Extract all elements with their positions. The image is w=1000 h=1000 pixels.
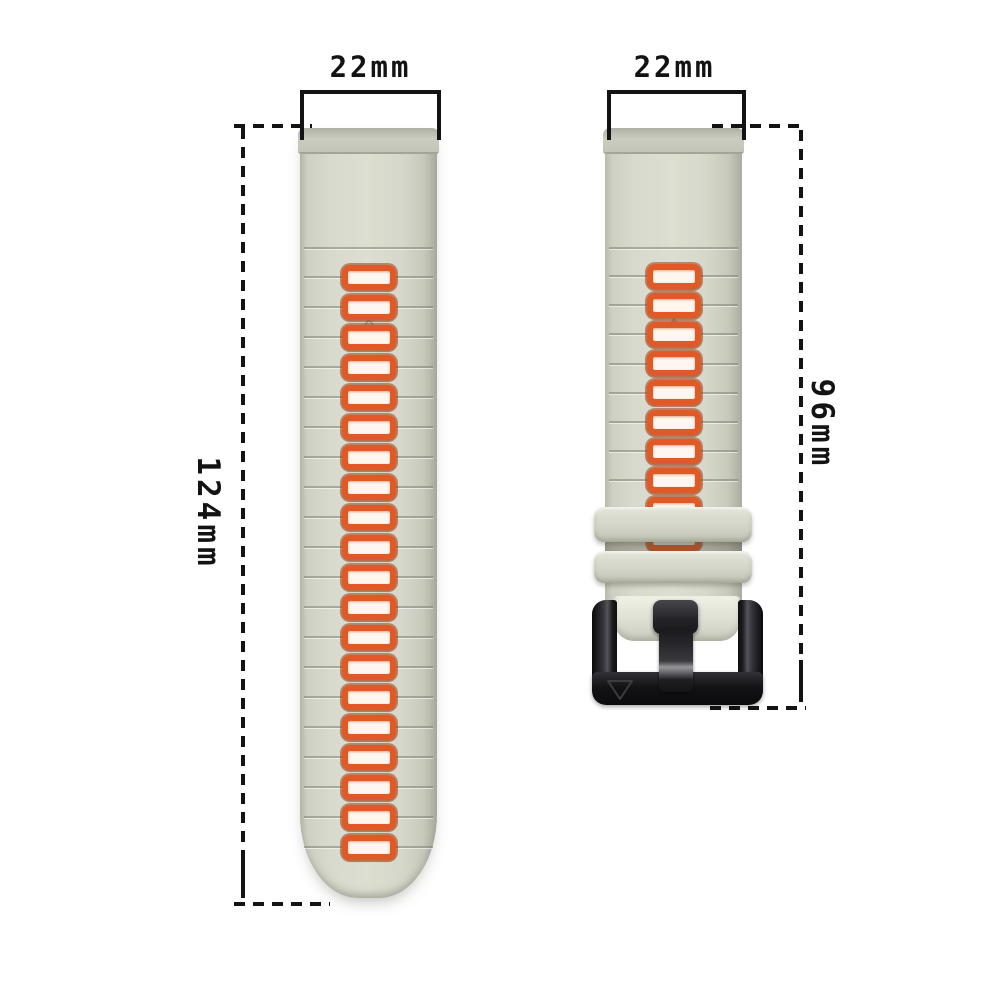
strap-hole [342, 775, 396, 800]
keeper-loop-2 [594, 551, 752, 583]
strap-hole [647, 439, 701, 464]
strap-hole [647, 264, 701, 289]
long-strap [300, 128, 437, 898]
left-width-bracket-line [300, 90, 441, 94]
strap-hole [342, 445, 396, 470]
strap-hole [342, 535, 396, 560]
strap-hole [342, 625, 396, 650]
strap-hole [342, 295, 396, 320]
keeper-loop-1 [594, 507, 752, 542]
left-length-dimension-line-end [241, 858, 245, 898]
buckle-tongue [659, 630, 693, 692]
strap-hole [342, 685, 396, 710]
left-strap-length-label: 124mm [190, 456, 226, 569]
strap-hole [647, 322, 701, 347]
right-length-dimension-line-end [799, 660, 803, 702]
right-width-bracket-tick-right [742, 90, 746, 140]
strap-hole [342, 655, 396, 680]
strap-hole [647, 380, 701, 405]
strap-hole [342, 745, 396, 770]
right-strap-length-label: 96mm [804, 379, 840, 470]
strap-hole [342, 415, 396, 440]
strap-hole [647, 351, 701, 376]
strap-hole [342, 565, 396, 590]
strap-groove [609, 247, 738, 249]
right-length-dimension-line [799, 130, 803, 660]
strap-hole [647, 410, 701, 435]
strap-hole [342, 835, 396, 860]
strap-hole [342, 475, 396, 500]
strap-hole [342, 385, 396, 410]
strap-hole [647, 293, 701, 318]
right-strap-width-label: 22mm [605, 50, 744, 84]
triangle-down-icon [606, 679, 634, 705]
strap-hole [647, 468, 701, 493]
strap-hole [342, 355, 396, 380]
watch-band-dimension-diagram: 22mm 124mm 22mm 96mm [0, 0, 1000, 1000]
right-width-bracket-tick-left [607, 90, 611, 140]
strap-hole [342, 265, 396, 290]
strap-hole [342, 505, 396, 530]
left-length-dimension-line [241, 128, 245, 858]
left-strap-width-label: 22mm [300, 50, 441, 84]
long-strap-end-cap [298, 128, 439, 154]
buckle-left-arm [592, 600, 617, 678]
left-length-bottom-connector [234, 902, 330, 906]
left-length-top-connector [234, 124, 312, 128]
left-width-bracket-tick-left [300, 90, 304, 140]
short-strap-end-cap [603, 128, 744, 154]
strap-hole [342, 805, 396, 830]
right-length-top-connector [712, 124, 806, 128]
right-width-bracket-line [607, 90, 746, 94]
left-width-bracket-tick-right [437, 90, 441, 140]
strap-hole [342, 595, 396, 620]
right-length-bottom-connector [710, 706, 806, 710]
strap-groove [304, 247, 433, 249]
buckle-right-arm [738, 600, 763, 678]
strap-hole [342, 325, 396, 350]
buckle-tongue-hinge [653, 600, 698, 634]
strap-hole [342, 715, 396, 740]
